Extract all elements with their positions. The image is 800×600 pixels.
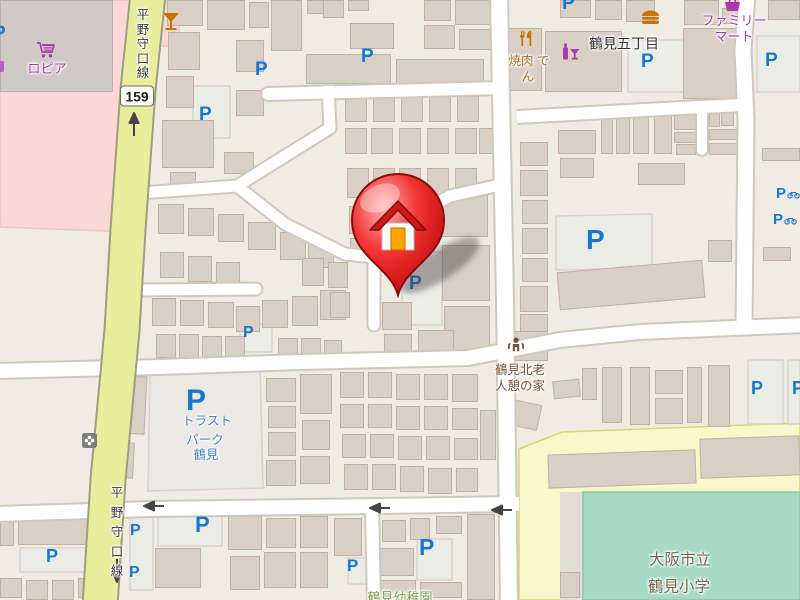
road-name-char: 守 bbox=[137, 37, 150, 52]
burger-icon bbox=[641, 10, 660, 30]
parking-icon: P bbox=[347, 557, 358, 574]
p-glyph: P bbox=[776, 185, 786, 202]
p-glyph: P bbox=[765, 50, 778, 71]
map-label: 鶴見小学 bbox=[648, 578, 710, 595]
map-label: 鶴見幼稚園 bbox=[367, 591, 432, 600]
p-glyph: P bbox=[792, 378, 800, 398]
parking-icon: P bbox=[765, 51, 778, 70]
map-canvas[interactable]: PPPPPPPPPPPPPPPPPPPPPロピア平野守口線平野守口線焼肉 でん鶴… bbox=[0, 0, 800, 600]
bicycle-parking-icon: P bbox=[773, 212, 797, 227]
winebar-icon bbox=[561, 43, 581, 65]
flower-icon bbox=[82, 433, 97, 453]
map-label: ロピア bbox=[27, 62, 66, 76]
parking-icon: P bbox=[243, 325, 254, 341]
map-label: ファミリー bbox=[701, 14, 766, 28]
road bbox=[136, 289, 256, 290]
p-glyph: P bbox=[186, 384, 206, 417]
parking-icon: P bbox=[562, 0, 575, 13]
parking-icon: P bbox=[130, 523, 141, 539]
parking-icon: P bbox=[129, 565, 140, 581]
map-label: 大阪市立 bbox=[649, 551, 711, 568]
p-glyph: P bbox=[129, 564, 140, 581]
forkknife-icon bbox=[517, 30, 535, 52]
parking-icon: P bbox=[0, 24, 6, 43]
map-label: トラスト bbox=[182, 415, 232, 429]
bicycle-parking-icon: P bbox=[776, 186, 800, 201]
road bbox=[372, 506, 374, 600]
parking-icon: P bbox=[361, 47, 374, 66]
road-name-char: 野 bbox=[111, 504, 124, 524]
p-glyph: P bbox=[641, 51, 654, 72]
p-glyph: P bbox=[361, 46, 374, 67]
parking-icon: P bbox=[195, 514, 210, 536]
house-door bbox=[391, 228, 405, 250]
home-location-marker[interactable] bbox=[336, 168, 506, 313]
road-name-char: 線 bbox=[111, 562, 124, 582]
p-glyph: P bbox=[419, 534, 434, 560]
map-label: 焼肉 で bbox=[509, 55, 550, 69]
parking-icon: P bbox=[419, 536, 434, 559]
parking-icon: P bbox=[792, 379, 800, 397]
road bbox=[268, 88, 500, 94]
p-glyph: P bbox=[586, 224, 605, 255]
map-label: 平野守口線 bbox=[137, 8, 150, 81]
road-name-char: 野 bbox=[137, 23, 150, 38]
map-label: パーク bbox=[186, 434, 224, 448]
p-glyph: P bbox=[347, 556, 358, 575]
map-label: 鶴見 bbox=[193, 449, 218, 463]
parking-icon: P bbox=[255, 60, 268, 79]
map-label: 鶴見五丁目 bbox=[589, 36, 659, 51]
map-label: 人憩の家 bbox=[495, 380, 545, 394]
p-glyph: P bbox=[199, 104, 212, 125]
p-glyph: P bbox=[195, 512, 210, 537]
p-glyph: P bbox=[255, 59, 268, 80]
parking-icon: P bbox=[186, 386, 206, 416]
cocktail-icon bbox=[162, 12, 180, 37]
p-glyph: P bbox=[46, 546, 58, 566]
p-glyph: P bbox=[243, 324, 254, 341]
map-label: 平野守口線 bbox=[111, 484, 124, 582]
road bbox=[517, 105, 744, 117]
road-name-char: 平 bbox=[137, 8, 150, 23]
p-glyph: P bbox=[562, 0, 575, 14]
person-icon bbox=[506, 336, 526, 360]
p-glyph: P bbox=[0, 23, 6, 44]
map-label: 鶴見北老 bbox=[495, 364, 545, 378]
road-name-char: 守 bbox=[111, 523, 124, 543]
parking-icon: P bbox=[199, 105, 212, 124]
parking-icon: P bbox=[751, 379, 763, 397]
p-glyph: P bbox=[130, 522, 141, 539]
map-label: ん bbox=[522, 71, 535, 85]
route-shield-159: 159 bbox=[120, 86, 154, 107]
parking-icon: P bbox=[586, 226, 605, 254]
road-name-char: 平 bbox=[111, 484, 124, 504]
map-label: マート bbox=[714, 30, 753, 44]
road-name-char: 口 bbox=[111, 543, 124, 563]
p-glyph: P bbox=[773, 211, 783, 228]
parking-icon: P bbox=[641, 52, 654, 71]
p-glyph: P bbox=[751, 378, 763, 398]
road bbox=[743, 0, 747, 330]
road-name-char: 口 bbox=[137, 52, 150, 67]
shop-cut-icon bbox=[0, 60, 5, 78]
parking-icon: P bbox=[46, 547, 58, 565]
road-name-char: 線 bbox=[137, 66, 150, 81]
